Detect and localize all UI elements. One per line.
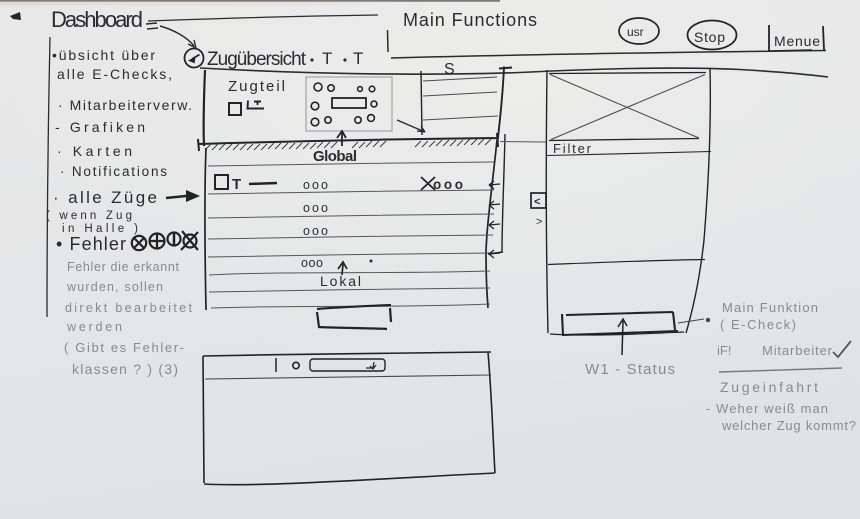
svg-text:Fehler die erkannt: Fehler die erkannt (67, 260, 180, 274)
svg-text:Mitarbeiter: Mitarbeiter (762, 343, 833, 358)
svg-text:Main Funktion: Main Funktion (722, 300, 818, 315)
svg-text:( Gibt es Fehler-: ( Gibt es Fehler- (64, 340, 184, 355)
svg-text:· alle Züge: · alle Züge (53, 188, 157, 207)
svg-text:( wenn Zug: ( wenn Zug (46, 210, 132, 222)
svg-text:T: T (232, 176, 241, 193)
svg-text:ooo: ooo (303, 178, 328, 192)
svg-text:klassen ? ) (3): klassen ? ) (3) (72, 361, 178, 377)
svg-text:Zugeinfahrt: Zugeinfahrt (720, 379, 818, 395)
svg-text:<: < (534, 196, 540, 208)
svg-text:ooo: ooo (433, 177, 463, 192)
svg-text:Global: Global (313, 148, 357, 165)
svg-text:· Mitarbeiterverw.: · Mitarbeiterverw. (58, 97, 192, 113)
svg-text:usr: usr (627, 25, 644, 39)
svg-text:>: > (536, 216, 542, 228)
svg-text:Filter: Filter (553, 141, 592, 156)
svg-text:wurden, sollen: wurden, sollen (66, 280, 163, 294)
svg-text:S: S (444, 61, 455, 78)
svg-text:W1 - Status: W1 - Status (585, 361, 675, 378)
svg-text:Zugübersicht: Zugübersicht (207, 49, 307, 70)
svg-text:iF!: iF! (717, 343, 731, 358)
svg-text:Stop: Stop (694, 29, 725, 45)
svg-text:alle E-Checks,: alle E-Checks, (57, 66, 172, 82)
svg-text:• Fehler: • Fehler (56, 234, 126, 254)
svg-text:Menue: Menue (774, 33, 820, 49)
svg-text:•übsicht über: •übsicht über (52, 47, 155, 63)
svg-text:Lokal: Lokal (320, 273, 361, 289)
svg-text:( E-Check): ( E-Check) (720, 317, 796, 332)
svg-text:ooo: ooo (303, 224, 328, 238)
svg-text:ooo: ooo (301, 256, 323, 270)
svg-text:- Weher weiß man: - Weher weiß man (706, 401, 828, 416)
svg-text:T: T (322, 49, 332, 68)
svg-text:ooo: ooo (303, 201, 328, 215)
svg-text:Main Functions: Main Functions (403, 10, 537, 30)
svg-text:T: T (353, 49, 363, 68)
svg-text:Dashboard: Dashboard (51, 7, 143, 32)
svg-text:Zugteil: Zugteil (228, 78, 285, 95)
svg-text:welcher Zug kommt?: welcher Zug kommt? (721, 418, 856, 433)
svg-text:· Notifications: · Notifications (60, 164, 167, 179)
